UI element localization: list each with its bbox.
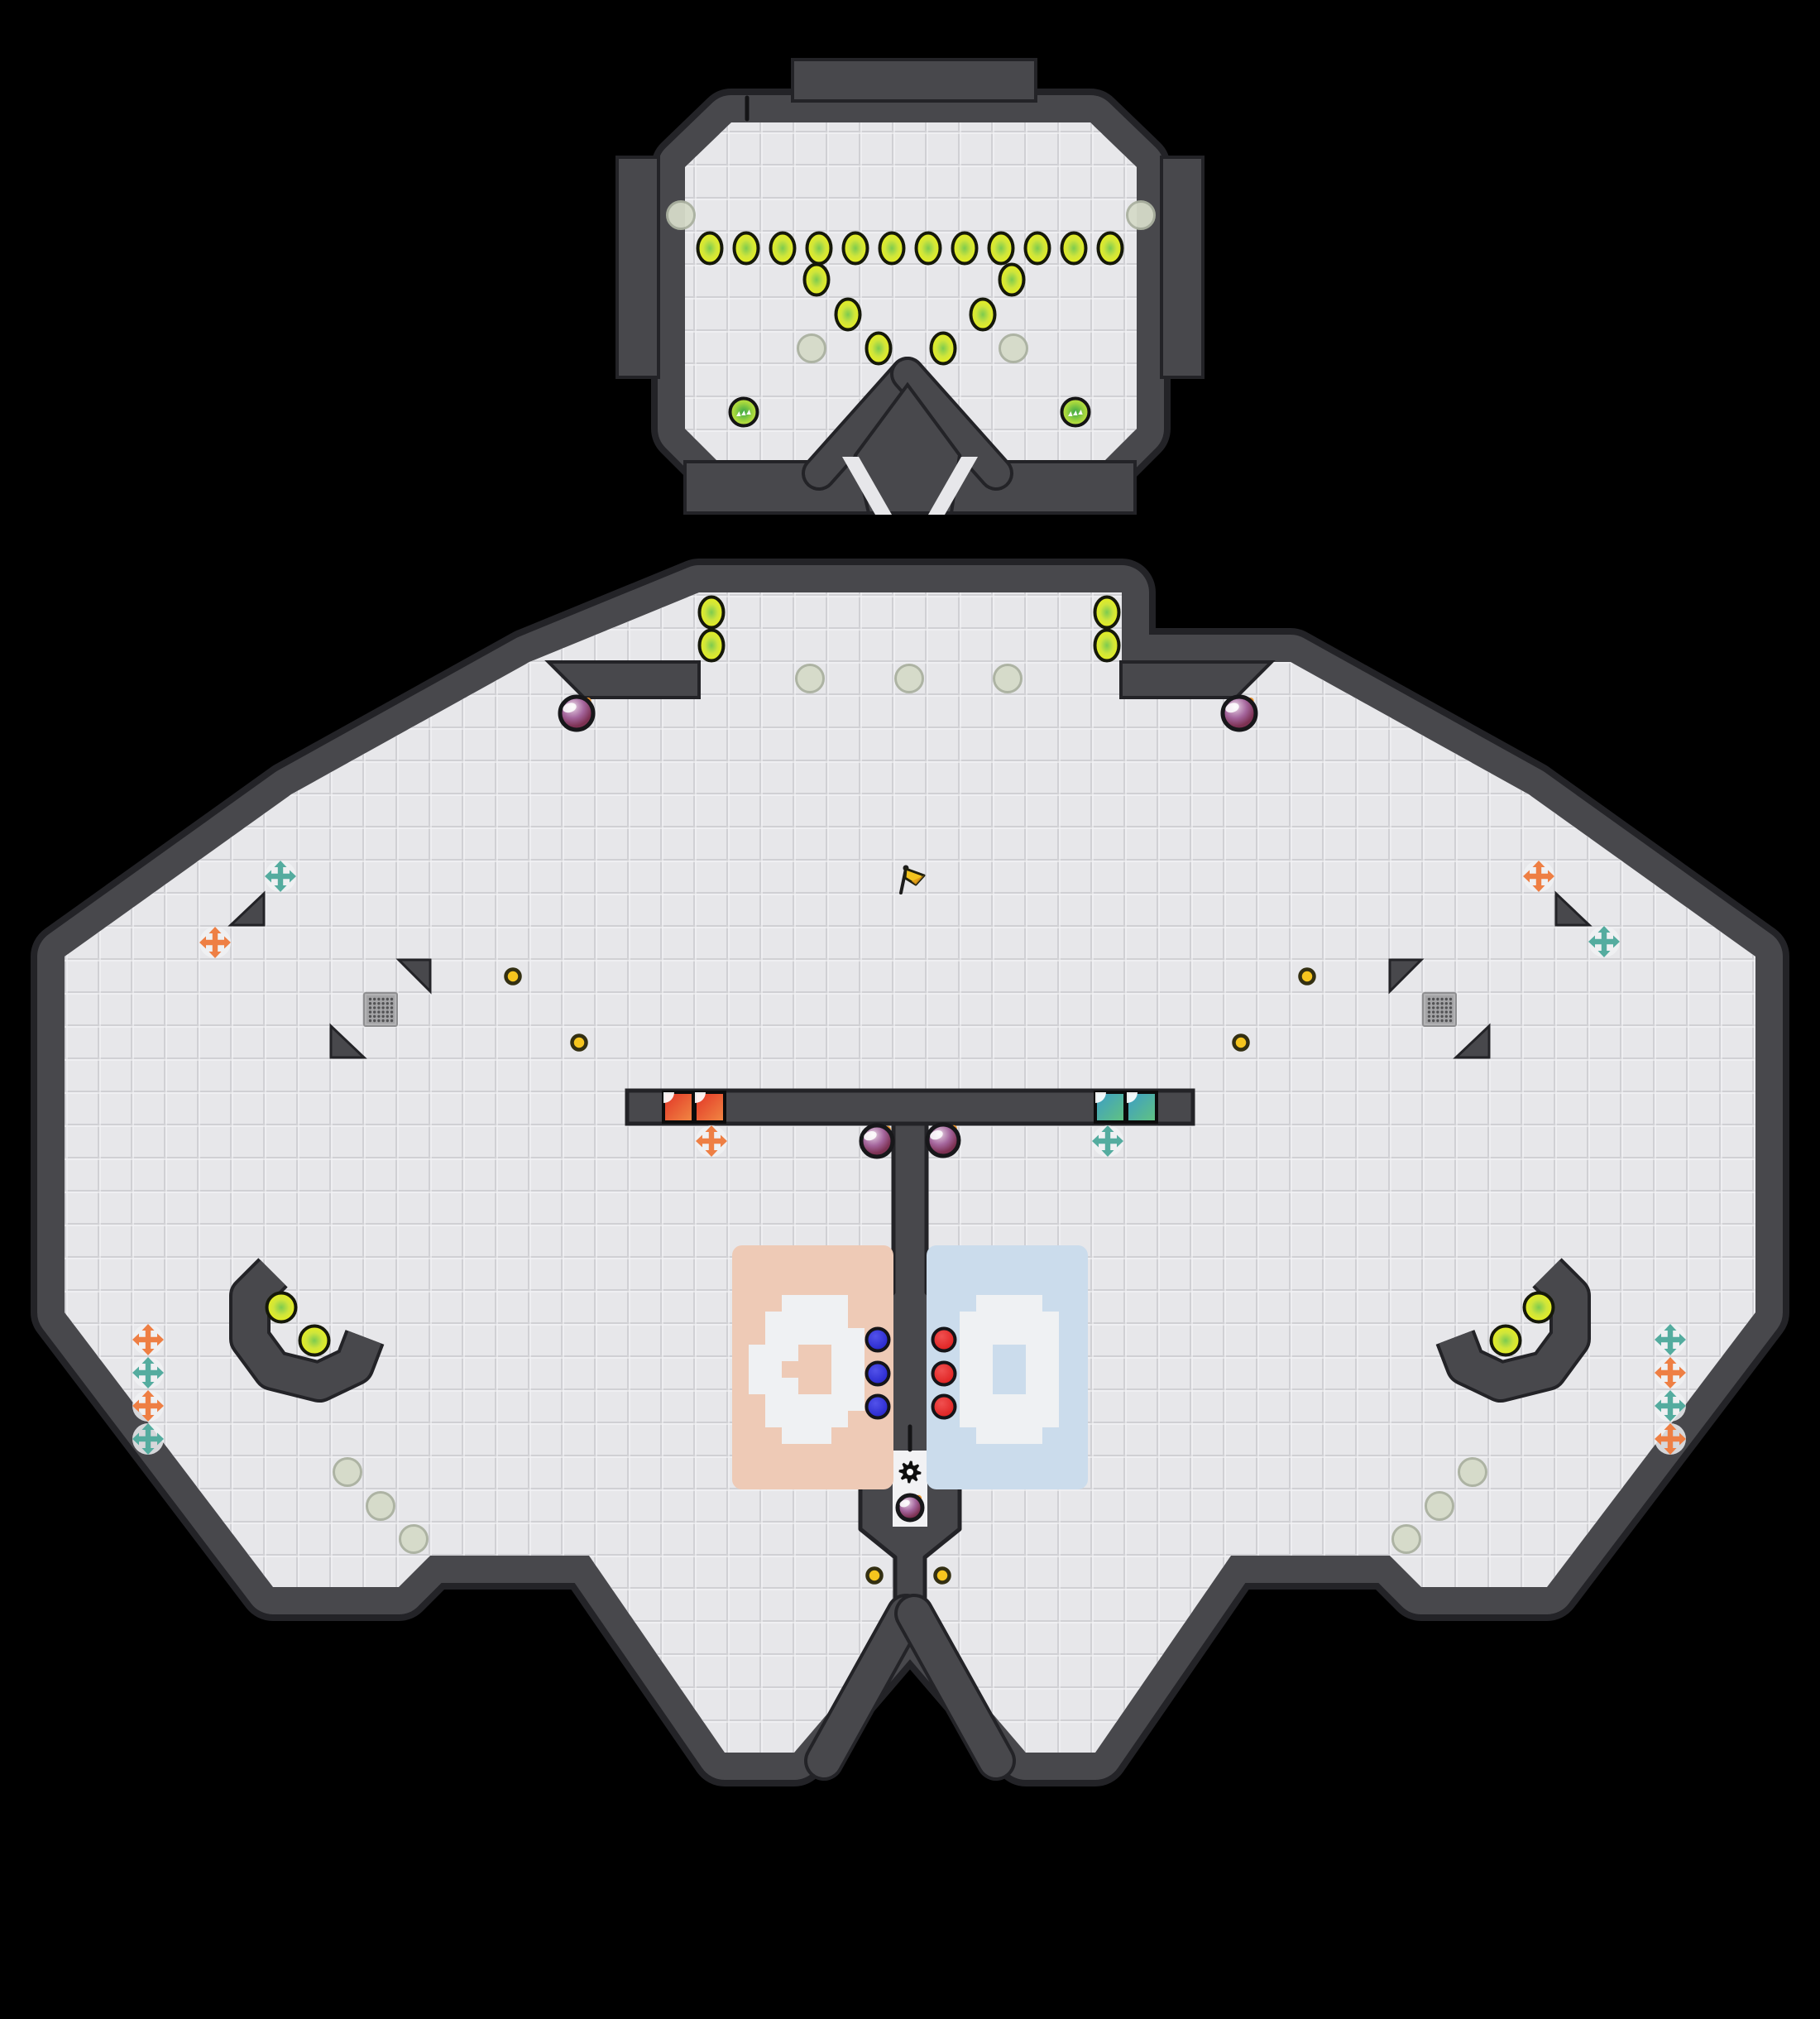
launch-pad <box>730 399 758 426</box>
gold-piece <box>700 631 724 661</box>
gold-piece <box>267 1293 296 1322</box>
mine-teal-icon <box>265 861 296 892</box>
mine-teal-icon <box>1655 1390 1686 1422</box>
mine-teal-icon <box>132 1423 164 1455</box>
door-red <box>663 1092 693 1122</box>
drone-bomb <box>560 697 593 730</box>
gold-piece <box>1095 631 1119 661</box>
mine-orange-icon <box>1655 1423 1686 1455</box>
main-arena <box>65 592 1755 1761</box>
gold-piece <box>698 233 722 264</box>
ghost-circle <box>1426 1493 1454 1520</box>
gold-piece <box>971 300 995 330</box>
gold-piece <box>836 300 860 330</box>
mine-teal-icon <box>1588 926 1620 957</box>
gold-piece <box>1062 233 1086 264</box>
gold-piece <box>917 233 941 264</box>
gold-piece <box>844 233 868 264</box>
gold-piece <box>1095 597 1119 628</box>
gold-piece <box>867 333 891 364</box>
gold-piece <box>700 597 724 628</box>
ghost-circle <box>668 202 695 229</box>
gold-dot <box>1300 970 1315 984</box>
top-room <box>617 60 1203 515</box>
mine-teal-icon <box>1655 1324 1686 1355</box>
button-blue <box>867 1329 889 1351</box>
ghost-circle <box>1459 1459 1487 1486</box>
gold-piece <box>1492 1326 1521 1355</box>
ghost-circle <box>367 1493 395 1520</box>
mine-orange-icon <box>199 927 231 958</box>
drone-bomb <box>927 1125 959 1156</box>
gold-piece <box>1099 233 1123 264</box>
button-red <box>933 1363 955 1385</box>
gold-piece <box>1000 265 1024 295</box>
mine-teal-icon <box>1092 1125 1123 1157</box>
button-blue <box>867 1396 889 1418</box>
gold-piece <box>805 265 829 295</box>
gold-piece <box>932 333 955 364</box>
grate <box>364 993 397 1026</box>
mine-teal-icon <box>132 1357 164 1388</box>
gold-piece <box>771 233 795 264</box>
wall-block <box>1161 157 1203 377</box>
ghost-circle <box>1393 1526 1420 1553</box>
launch-pad <box>1062 399 1090 426</box>
button-blue <box>867 1363 889 1385</box>
wall-block <box>617 157 659 377</box>
gold-dot <box>868 1569 882 1583</box>
mine-orange-icon <box>132 1390 164 1422</box>
gold-dot <box>572 1036 587 1050</box>
gold-piece <box>953 233 977 264</box>
ghost-circle <box>334 1459 362 1486</box>
ghost-circle <box>994 665 1022 693</box>
gold-piece <box>300 1326 329 1355</box>
gold-piece <box>989 233 1013 264</box>
grate <box>1423 993 1456 1026</box>
door-teal <box>1095 1092 1125 1122</box>
door-red <box>695 1092 725 1122</box>
level-map-canvas[interactable] <box>0 0 1820 2019</box>
ghost-circle <box>797 665 824 693</box>
gold-piece <box>807 233 831 264</box>
gold-dot <box>936 1569 950 1583</box>
gold-piece <box>1525 1293 1554 1322</box>
ghost-circle <box>1128 202 1155 229</box>
gold-piece <box>880 233 904 264</box>
ghost-circle <box>896 665 923 693</box>
wall-block <box>793 60 1036 101</box>
gold-dot <box>506 970 520 984</box>
mine-orange-icon <box>1655 1357 1686 1388</box>
gold-piece <box>1026 233 1050 264</box>
drone-bomb <box>1223 697 1256 730</box>
gold-dot <box>1234 1036 1248 1050</box>
mine-orange-icon <box>696 1125 727 1157</box>
drone-bomb <box>898 1495 922 1520</box>
drone-bomb <box>861 1125 893 1157</box>
level-map[interactable] <box>0 0 1820 2019</box>
ghost-circle <box>400 1526 428 1553</box>
ghost-circle <box>1000 335 1027 362</box>
button-red <box>933 1396 955 1418</box>
door-teal <box>1127 1092 1157 1122</box>
gold-piece <box>735 233 759 264</box>
ghost-circle <box>798 335 826 362</box>
button-red <box>933 1329 955 1351</box>
gear-icon <box>899 1461 922 1484</box>
mine-orange-icon <box>1523 861 1554 892</box>
mine-orange-icon <box>132 1324 164 1355</box>
